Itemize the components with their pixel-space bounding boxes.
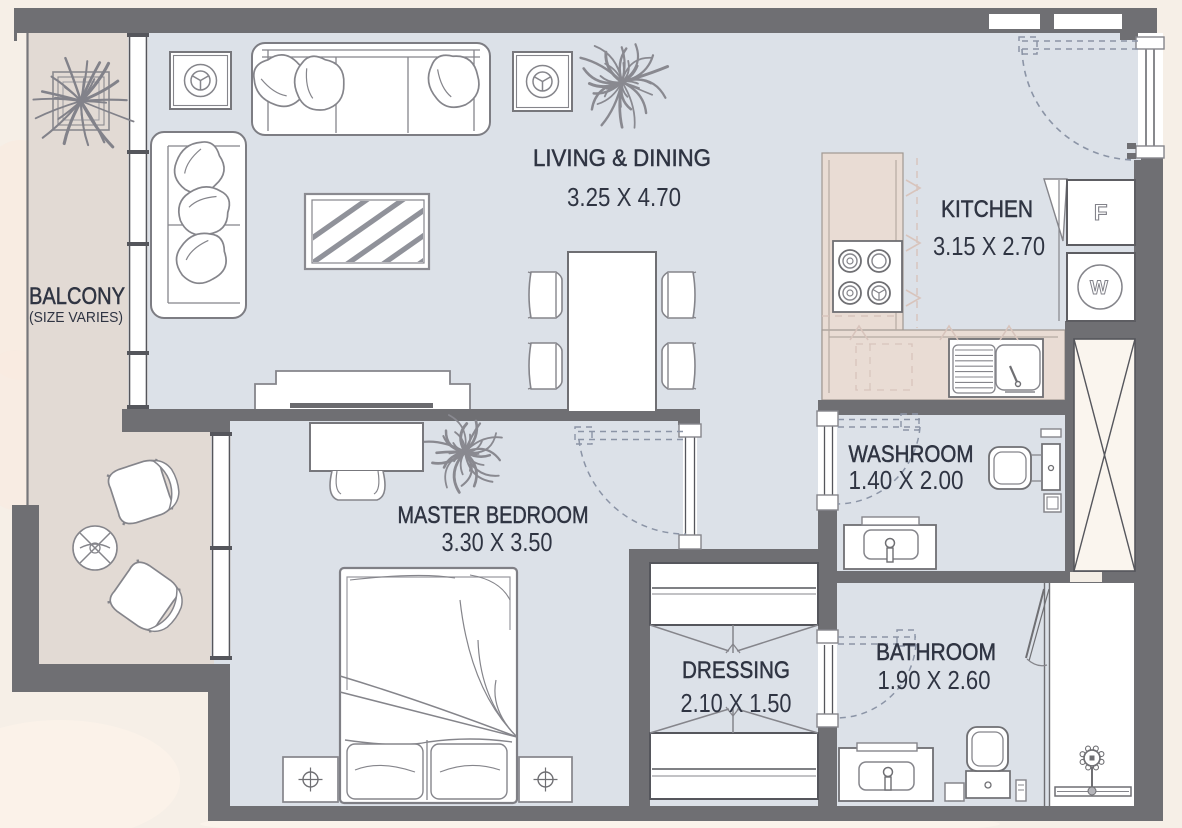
svg-text:MASTER BEDROOM: MASTER BEDROOM — [398, 502, 589, 529]
svg-text:WASHROOM: WASHROOM — [849, 441, 974, 468]
svg-text:1.90 X 2.60: 1.90 X 2.60 — [878, 665, 991, 695]
svg-text:W: W — [1090, 278, 1108, 299]
svg-text:LIVING & DINING: LIVING & DINING — [533, 145, 711, 172]
svg-text:3.15 X 2.70: 3.15 X 2.70 — [933, 231, 1045, 261]
svg-text:3.30 X 3.50: 3.30 X 3.50 — [442, 527, 553, 557]
svg-text:(SIZE VARIES): (SIZE VARIES) — [29, 309, 123, 326]
svg-text:F: F — [1094, 200, 1107, 225]
svg-text:BATHROOM: BATHROOM — [876, 639, 996, 666]
svg-text:KITCHEN: KITCHEN — [941, 196, 1033, 223]
svg-text:BALCONY: BALCONY — [29, 283, 125, 310]
svg-text:DRESSING: DRESSING — [682, 657, 790, 684]
svg-text:2.10 X 1.50: 2.10 X 1.50 — [681, 688, 792, 718]
svg-text:1.40 X 2.00: 1.40 X 2.00 — [849, 465, 964, 495]
svg-text:3.25 X 4.70: 3.25 X 4.70 — [567, 182, 681, 212]
